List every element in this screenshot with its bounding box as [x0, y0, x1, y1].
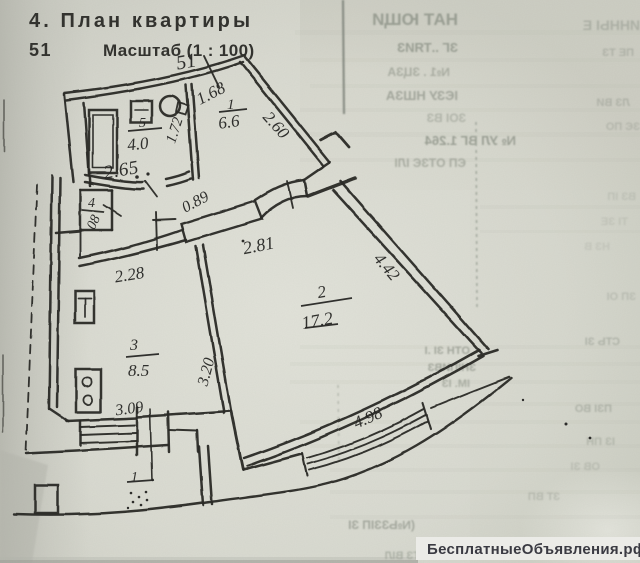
- svg-text:ЗОІ ВЗ: ЗОІ ВЗ: [427, 111, 466, 125]
- svg-text:(№ЬЗЗІП ЗІ: (№ЬЗЗІП ЗІ: [348, 518, 415, 532]
- svg-text:ОТН ЗІ .І: ОТН ЗІ .І: [425, 345, 470, 357]
- svg-text:ПЕ ТЗ: ПЕ ТЗ: [602, 47, 634, 59]
- svg-text:НЗ В: НЗ В: [584, 241, 610, 253]
- svg-text:4.0: 4.0: [126, 133, 150, 154]
- svg-text:ЗЄ ПО: ЗЄ ПО: [605, 121, 640, 133]
- svg-text:ПЗІ ВО: ПЗІ ВО: [574, 403, 612, 415]
- svg-text:ТЗ ВІЛ: ТЗ ВІЛ: [385, 550, 420, 562]
- svg-text:51: 51: [174, 49, 198, 74]
- svg-text:ІЄЗУ НШЗА: ІЄЗУ НШЗА: [385, 88, 458, 103]
- svg-text:6.6: 6.6: [217, 111, 241, 133]
- svg-text:№1 . ЗЦЗА: №1 . ЗЦЗА: [387, 65, 450, 79]
- svg-text:ОВ ЗІ: ОВ ЗІ: [570, 461, 600, 473]
- svg-text:51: 51: [29, 40, 52, 60]
- svg-text:СТЬ ЗІ: СТЬ ЗІ: [585, 336, 620, 348]
- svg-text:4: 4: [88, 196, 95, 211]
- svg-text:ЗГ ..ТЯИЗ: ЗГ ..ТЯИЗ: [397, 40, 458, 55]
- svg-text:ЄП ОТЗЄ ІЛІ: ЄП ОТЗЄ ІЛІ: [394, 156, 466, 170]
- svg-text:ИННЫ Е: ИННЫ Е: [583, 17, 640, 33]
- svg-text:1: 1: [131, 470, 138, 485]
- svg-text:ІМ. ІЗ: ІМ. ІЗ: [442, 378, 470, 390]
- svg-text:БесплатныеОбъявления.рф: БесплатныеОбъявления.рф: [427, 541, 640, 558]
- svg-text:3: 3: [129, 337, 138, 354]
- svg-text:НАТ ЮЩИ: НАТ ЮЩИ: [372, 10, 458, 29]
- svg-text:ВЗ ІП: ВЗ ІП: [607, 191, 636, 203]
- svg-text:№ УЛ ВГ 1.264: № УЛ ВГ 1.264: [424, 133, 516, 148]
- svg-text:ЗП ОІ: ЗП ОІ: [607, 291, 636, 303]
- svg-text:4. План квартиры: 4. План квартиры: [29, 10, 253, 32]
- svg-text:ЛЗ ВИ: ЛЗ ВИ: [596, 97, 630, 109]
- svg-text:ТІ ЗЕ: ТІ ЗЕ: [601, 216, 628, 228]
- svg-text:ЗТ ВП: ЗТ ВП: [528, 491, 560, 503]
- svg-text:8.5: 8.5: [128, 361, 149, 380]
